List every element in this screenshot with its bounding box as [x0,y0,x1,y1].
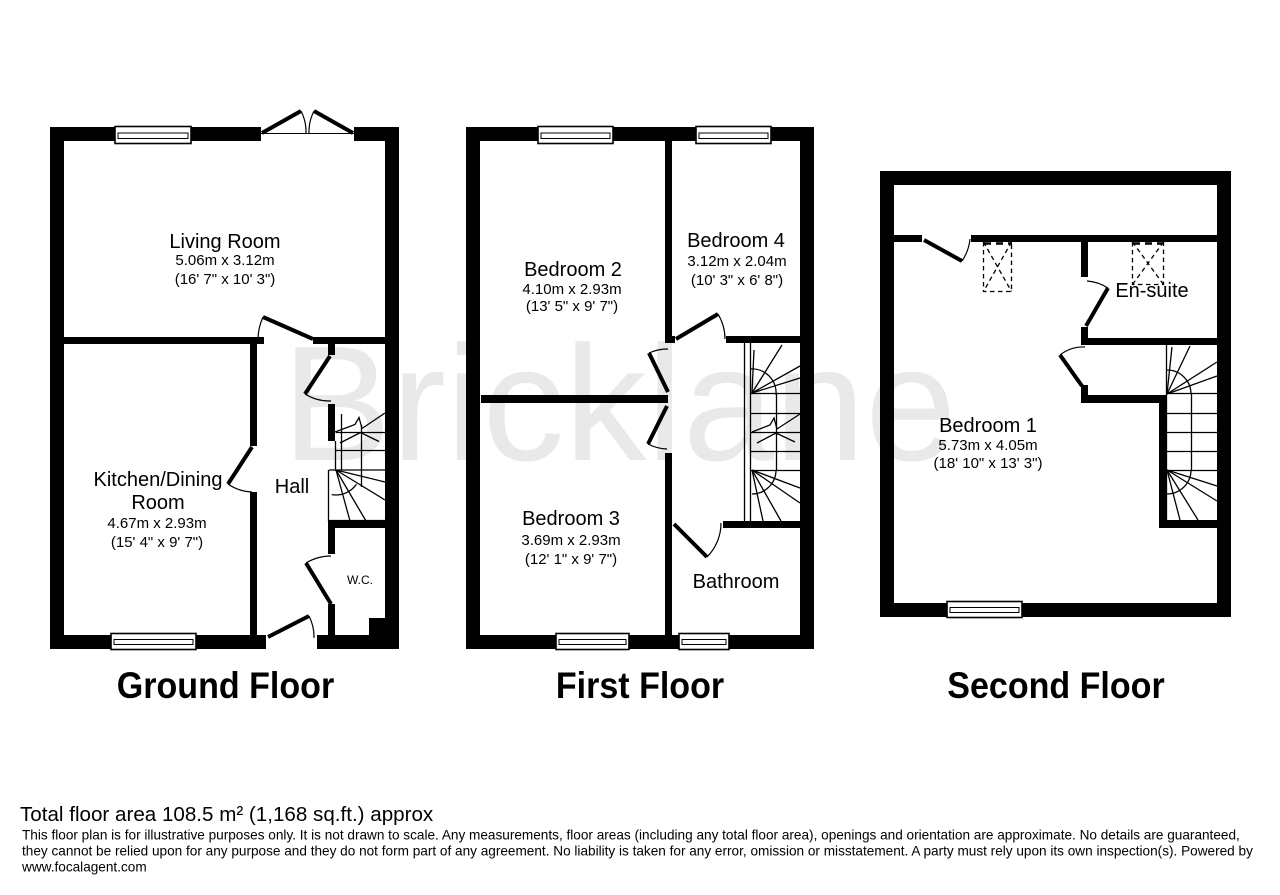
svg-text:Kitchen/Dining: Kitchen/Dining [94,469,223,491]
svg-text:W.C.: W.C. [347,573,373,587]
svg-text:3.69m x 2.93m: 3.69m x 2.93m [521,532,620,549]
svg-text:En-suite: En-suite [1115,280,1188,302]
svg-text:Ground Floor: Ground Floor [117,664,334,706]
svg-text:4.67m x 2.93m: 4.67m x 2.93m [107,515,206,532]
svg-text:Bedroom 3: Bedroom 3 [522,508,620,530]
svg-text:4.10m x 2.93m: 4.10m x 2.93m [522,281,621,298]
svg-text:Bedroom 2: Bedroom 2 [524,259,622,281]
svg-text:(16' 7" x 10' 3"): (16' 7" x 10' 3") [175,271,276,288]
svg-text:(15' 4" x 9' 7"): (15' 4" x 9' 7") [111,534,203,551]
svg-text:5.06m x 3.12m: 5.06m x 3.12m [175,252,274,269]
svg-text:Bedroom 1: Bedroom 1 [939,415,1037,437]
svg-text:3.12m x 2.04m: 3.12m x 2.04m [687,253,786,270]
svg-text:Total floor area 108.5 m² (1,1: Total floor area 108.5 m² (1,168 sq.ft.)… [20,803,434,826]
svg-text:(12' 1" x 9' 7"): (12' 1" x 9' 7") [525,551,617,568]
svg-text:Bathroom: Bathroom [693,571,780,593]
svg-text:Room: Room [131,492,184,514]
svg-text:Living Room: Living Room [169,231,280,253]
svg-text:(18' 10" x 13' 3"): (18' 10" x 13' 3") [934,455,1043,472]
svg-text:This floor plan is for illustr: This floor plan is for illustrative purp… [22,828,1240,843]
svg-text:(10' 3" x 6' 8"): (10' 3" x 6' 8") [691,272,783,289]
svg-text:First Floor: First Floor [556,664,724,706]
svg-text:(13' 5" x 9' 7"): (13' 5" x 9' 7") [526,298,618,315]
svg-text:Hall: Hall [275,476,309,498]
svg-text:Bedroom 4: Bedroom 4 [687,230,785,252]
svg-text:they cannot be relied upon for: they cannot be relied upon for any purpo… [22,844,1253,859]
svg-text:5.73m x 4.05m: 5.73m x 4.05m [938,437,1037,454]
svg-text:www.focalagent.com: www.focalagent.com [21,860,147,875]
svg-text:Second Floor: Second Floor [947,664,1164,706]
